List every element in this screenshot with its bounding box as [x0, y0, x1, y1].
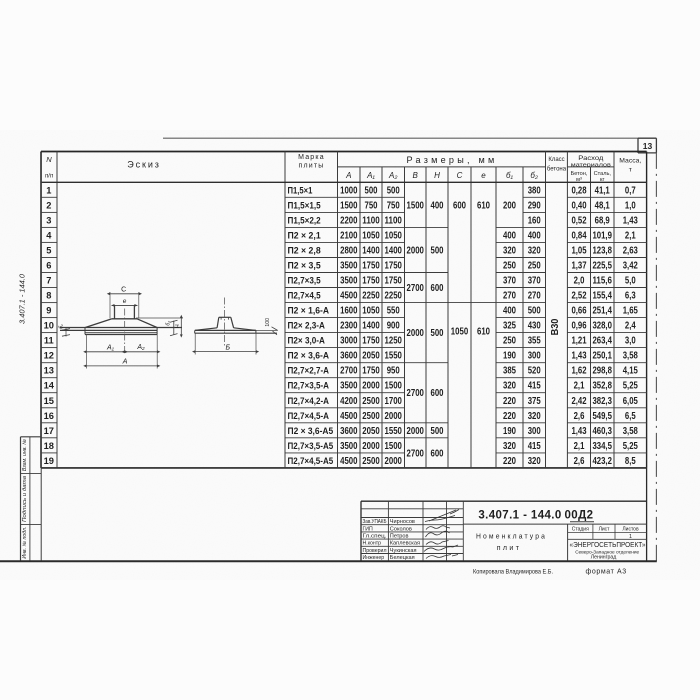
svg-text:2700: 2700 [407, 388, 425, 399]
svg-text:270: 270 [503, 291, 516, 302]
svg-text:3500: 3500 [340, 261, 358, 272]
svg-text:1400: 1400 [362, 321, 380, 332]
svg-text:220: 220 [503, 396, 516, 407]
svg-text:48,1: 48,1 [595, 200, 611, 211]
svg-text:5,25: 5,25 [623, 381, 639, 392]
svg-text:1750: 1750 [362, 336, 380, 347]
svg-text:1050: 1050 [385, 230, 403, 241]
svg-text:300: 300 [528, 426, 541, 437]
svg-text:2700: 2700 [407, 283, 425, 294]
svg-text:2000: 2000 [362, 441, 380, 452]
svg-text:2,6: 2,6 [574, 411, 585, 422]
svg-text:1,62: 1,62 [571, 366, 587, 377]
svg-text:Листов: Листов [622, 527, 639, 533]
svg-text:1750: 1750 [362, 261, 380, 272]
svg-text:Стадия: Стадия [572, 527, 589, 533]
svg-text:325: 325 [503, 321, 516, 332]
svg-text:520: 520 [528, 366, 541, 377]
svg-text:251,4: 251,4 [592, 306, 612, 317]
svg-text:б₁: б₁ [506, 171, 514, 180]
svg-text:П2,7×4,5-А5: П2,7×4,5-А5 [288, 456, 334, 466]
svg-text:С: С [121, 287, 126, 294]
svg-text:2300: 2300 [340, 321, 358, 332]
svg-text:П1,5×1,5: П1,5×1,5 [288, 200, 321, 210]
svg-text:П2,7×4,5: П2,7×4,5 [288, 291, 321, 301]
svg-text:«ЭНЕРГОСЕТЬПРОЕКТ»: «ЭНЕРГОСЕТЬПРОЕКТ» [570, 540, 646, 549]
svg-text:375: 375 [528, 396, 541, 407]
svg-text:Инв. № подл.: Инв. № подл. [22, 527, 28, 559]
svg-text:328,0: 328,0 [592, 321, 612, 332]
svg-text:10: 10 [44, 321, 54, 331]
svg-text:2000: 2000 [407, 426, 425, 437]
svg-text:2500: 2500 [362, 456, 380, 467]
svg-text:2700: 2700 [407, 448, 425, 459]
svg-text:4200: 4200 [340, 396, 358, 407]
svg-text:2200: 2200 [340, 215, 358, 226]
svg-text:400: 400 [503, 306, 516, 317]
svg-text:3,42: 3,42 [623, 261, 639, 272]
svg-text:А: А [345, 171, 351, 180]
svg-text:3600: 3600 [340, 426, 358, 437]
svg-text:0,52: 0,52 [571, 215, 587, 226]
svg-text:270: 270 [528, 291, 541, 302]
svg-text:2050: 2050 [362, 351, 380, 362]
svg-text:610: 610 [477, 326, 490, 337]
svg-text:2000: 2000 [407, 328, 425, 339]
svg-text:Масса,: Масса, [619, 158, 641, 165]
svg-text:В30: В30 [550, 318, 561, 335]
svg-text:3.407.1 - 144.0: 3.407.1 - 144.0 [478, 510, 561, 522]
svg-text:352,8: 352,8 [592, 381, 612, 392]
svg-text:750: 750 [387, 200, 400, 211]
svg-text:320: 320 [528, 245, 541, 256]
svg-text:формат А3: формат А3 [586, 569, 627, 576]
svg-text:2100: 2100 [340, 230, 358, 241]
svg-text:Эскиз: Эскиз [127, 160, 161, 170]
svg-text:68,9: 68,9 [595, 215, 611, 226]
svg-text:220: 220 [503, 456, 516, 467]
svg-text:355: 355 [528, 336, 541, 347]
svg-text:3,58: 3,58 [623, 426, 639, 437]
svg-text:0,28: 0,28 [571, 185, 587, 196]
svg-text:б₂: б₂ [165, 321, 171, 326]
svg-text:334,5: 334,5 [592, 441, 612, 452]
svg-text:0,84: 0,84 [571, 230, 587, 241]
svg-text:225,5: 225,5 [592, 261, 612, 272]
svg-text:1,05: 1,05 [571, 245, 587, 256]
svg-text:Зав.УПАКБ: Зав.УПАКБ [363, 519, 388, 525]
svg-text:1050: 1050 [451, 326, 469, 337]
svg-text:А₁: А₁ [106, 344, 115, 351]
svg-text:А₁: А₁ [366, 171, 375, 180]
svg-text:6,5: 6,5 [625, 411, 636, 422]
svg-text:1550: 1550 [385, 426, 403, 437]
svg-text:Белецкая: Белецкая [390, 555, 415, 561]
svg-text:6: 6 [46, 261, 51, 271]
svg-text:4,15: 4,15 [623, 366, 639, 377]
svg-text:2500: 2500 [362, 411, 380, 422]
svg-text:плиты: плиты [298, 163, 324, 170]
svg-text:320: 320 [503, 441, 516, 452]
svg-text:е: е [481, 171, 486, 180]
svg-text:П2 × 2,1: П2 × 2,1 [288, 230, 321, 240]
svg-text:Каплевская: Каплевская [390, 541, 420, 547]
svg-text:5,25: 5,25 [623, 441, 639, 452]
svg-text:Проверил: Проверил [363, 548, 387, 554]
svg-text:1550: 1550 [385, 351, 403, 362]
svg-text:П2 × 3,6-А5: П2 × 3,6-А5 [288, 426, 334, 436]
svg-text:250: 250 [528, 261, 541, 272]
svg-text:4500: 4500 [340, 291, 358, 302]
svg-text:12: 12 [44, 351, 54, 361]
svg-text:Соколов: Соколов [390, 526, 412, 532]
svg-text:320: 320 [528, 411, 541, 422]
svg-text:160: 160 [528, 215, 541, 226]
svg-text:П1,5×2,2: П1,5×2,2 [288, 215, 321, 225]
svg-text:415: 415 [528, 441, 541, 452]
svg-text:430: 430 [528, 321, 541, 332]
svg-text:Н.контр: Н.контр [363, 541, 382, 547]
svg-text:9: 9 [46, 306, 51, 316]
svg-text:Расход: Расход [578, 156, 604, 162]
svg-text:2250: 2250 [385, 291, 403, 302]
svg-text:плит: плит [497, 545, 522, 552]
svg-text:6,3: 6,3 [625, 291, 636, 302]
svg-text:155,4: 155,4 [592, 291, 612, 302]
svg-text:1750: 1750 [385, 276, 403, 287]
svg-text:1250: 1250 [385, 336, 403, 347]
svg-text:1400: 1400 [362, 245, 380, 256]
svg-text:1,43: 1,43 [571, 426, 587, 437]
svg-text:600: 600 [431, 388, 444, 399]
svg-text:2: 2 [46, 200, 51, 210]
svg-text:17: 17 [44, 426, 54, 436]
svg-text:1750: 1750 [362, 366, 380, 377]
svg-text:П2,7×2,7-А: П2,7×2,7-А [288, 366, 330, 376]
svg-text:Бетон,: Бетон, [571, 171, 588, 177]
svg-text:100: 100 [265, 318, 271, 327]
svg-text:1,0: 1,0 [625, 200, 636, 211]
svg-text:С: С [457, 171, 463, 180]
svg-text:320: 320 [528, 456, 541, 467]
svg-text:14: 14 [44, 381, 55, 391]
svg-text:18: 18 [44, 441, 54, 451]
svg-text:1500: 1500 [340, 200, 358, 211]
svg-text:2050: 2050 [362, 426, 380, 437]
svg-text:кг: кг [600, 177, 605, 183]
svg-text:500: 500 [365, 185, 378, 196]
svg-text:16: 16 [44, 411, 54, 421]
svg-text:1100: 1100 [385, 215, 403, 226]
svg-text:В: В [413, 171, 419, 180]
svg-text:Чукинская: Чукинская [390, 548, 417, 554]
svg-text:Взам. инв. №: Взам. инв. № [22, 439, 28, 472]
svg-text:3000: 3000 [340, 336, 358, 347]
svg-text:1500: 1500 [385, 381, 403, 392]
svg-text:П2,7×3,5-А5: П2,7×3,5-А5 [288, 441, 334, 451]
svg-text:Сталь,: Сталь, [594, 171, 612, 177]
svg-text:2,1: 2,1 [625, 230, 636, 241]
svg-text:2500: 2500 [362, 396, 380, 407]
svg-text:460,3: 460,3 [592, 426, 612, 437]
svg-text:Гл.спец.: Гл.спец. [363, 534, 387, 540]
svg-text:1000: 1000 [340, 185, 358, 196]
svg-text:т: т [629, 167, 632, 174]
svg-text:500: 500 [431, 426, 444, 437]
svg-text:1700: 1700 [385, 396, 403, 407]
svg-text:П2,7×4,5-А: П2,7×4,5-А [288, 411, 330, 421]
svg-text:400: 400 [528, 230, 541, 241]
svg-text:2700: 2700 [340, 366, 358, 377]
svg-text:115,6: 115,6 [592, 276, 612, 287]
svg-text:3: 3 [46, 215, 51, 225]
svg-text:Б: Б [226, 345, 231, 352]
svg-text:0,96: 0,96 [571, 321, 587, 332]
svg-text:13: 13 [44, 366, 54, 376]
svg-text:4500: 4500 [340, 411, 358, 422]
svg-text:15: 15 [44, 396, 54, 406]
svg-text:2,42: 2,42 [571, 396, 587, 407]
svg-text:370: 370 [528, 276, 541, 287]
svg-text:1050: 1050 [362, 230, 380, 241]
svg-text:423,2: 423,2 [592, 456, 612, 467]
svg-text:1,43: 1,43 [623, 215, 639, 226]
svg-text:3,0: 3,0 [625, 336, 636, 347]
svg-text:500: 500 [387, 185, 400, 196]
svg-text:П2,7×3,5-А: П2,7×3,5-А [288, 381, 330, 391]
svg-text:250: 250 [503, 336, 516, 347]
svg-text:П2× 3,0-А: П2× 3,0-А [288, 336, 326, 346]
svg-text:2,1: 2,1 [574, 381, 585, 392]
svg-text:123,8: 123,8 [592, 245, 612, 256]
svg-text:Ленинград: Ленинград [591, 555, 617, 561]
svg-text:8: 8 [46, 291, 51, 301]
svg-text:Н: Н [175, 324, 181, 328]
svg-text:1400: 1400 [385, 245, 403, 256]
svg-text:2000: 2000 [385, 456, 403, 467]
svg-text:П1,5×1: П1,5×1 [288, 185, 313, 195]
svg-text:263,4: 263,4 [592, 336, 612, 347]
svg-text:600: 600 [431, 283, 444, 294]
svg-text:380: 380 [528, 185, 541, 196]
svg-text:2,1: 2,1 [574, 441, 585, 452]
svg-text:4: 4 [46, 230, 52, 240]
svg-text:1750: 1750 [362, 276, 380, 287]
svg-text:N: N [46, 155, 52, 164]
svg-text:550: 550 [387, 306, 400, 317]
svg-text:298,8: 298,8 [592, 366, 612, 377]
svg-text:0,66: 0,66 [571, 306, 587, 317]
svg-text:П2 × 1,6-А: П2 × 1,6-А [288, 306, 330, 316]
svg-text:220: 220 [503, 411, 516, 422]
svg-text:320: 320 [503, 245, 516, 256]
svg-text:6,05: 6,05 [623, 396, 639, 407]
svg-text:00Д2: 00Д2 [565, 510, 594, 522]
svg-text:2000: 2000 [385, 411, 403, 422]
svg-text:материалов: материалов [571, 162, 611, 168]
svg-text:3,58: 3,58 [623, 351, 639, 362]
svg-text:2,52: 2,52 [571, 291, 587, 302]
svg-text:4500: 4500 [340, 456, 358, 467]
svg-text:1100: 1100 [362, 215, 380, 226]
svg-text:600: 600 [431, 448, 444, 459]
svg-text:ГИП: ГИП [363, 526, 374, 532]
svg-text:П2 × 3,5: П2 × 3,5 [288, 261, 321, 271]
svg-text:3500: 3500 [340, 276, 358, 287]
svg-text:П2 × 3,6-А: П2 × 3,6-А [288, 351, 330, 361]
svg-text:0,40: 0,40 [571, 200, 587, 211]
svg-text:1,65: 1,65 [623, 306, 639, 317]
svg-text:7: 7 [46, 276, 51, 286]
svg-text:2800: 2800 [340, 245, 358, 256]
svg-text:2000: 2000 [407, 245, 425, 256]
svg-text:950: 950 [387, 366, 400, 377]
svg-text:1500: 1500 [407, 200, 425, 211]
svg-text:5,0: 5,0 [625, 276, 636, 287]
svg-text:400: 400 [503, 230, 516, 241]
svg-text:11: 11 [44, 336, 54, 346]
svg-text:400: 400 [431, 200, 444, 211]
svg-text:1500: 1500 [385, 441, 403, 452]
svg-text:2,6: 2,6 [574, 456, 585, 467]
svg-text:б₁: б₁ [59, 324, 65, 329]
svg-text:1: 1 [46, 185, 51, 195]
svg-text:320: 320 [503, 381, 516, 392]
svg-text:250: 250 [503, 261, 516, 272]
svg-text:3600: 3600 [340, 351, 358, 362]
svg-text:750: 750 [365, 200, 378, 211]
svg-text:Класс: Класс [548, 157, 564, 163]
svg-text:610: 610 [477, 200, 490, 211]
svg-text:А: А [122, 357, 128, 366]
svg-text:Номенклатура: Номенклатура [476, 533, 547, 540]
svg-text:8,5: 8,5 [625, 456, 636, 467]
svg-text:250,1: 250,1 [592, 351, 612, 362]
svg-text:500: 500 [431, 245, 444, 256]
svg-text:А₂: А₂ [388, 171, 397, 180]
svg-text:1600: 1600 [340, 306, 358, 317]
svg-text:м³: м³ [576, 177, 582, 183]
svg-text:Лист: Лист [599, 527, 611, 533]
svg-text:190: 190 [503, 351, 516, 362]
svg-text:549,5: 549,5 [592, 411, 612, 422]
svg-text:Петров: Петров [390, 534, 409, 540]
svg-text:1050: 1050 [362, 306, 380, 317]
svg-text:2,4: 2,4 [625, 321, 636, 332]
svg-text:5: 5 [46, 245, 51, 255]
svg-text:13: 13 [643, 141, 653, 151]
svg-text:370: 370 [503, 276, 516, 287]
svg-text:415: 415 [528, 381, 541, 392]
svg-text:бетона: бетона [547, 167, 567, 173]
svg-text:101,9: 101,9 [592, 230, 612, 241]
svg-text:0,7: 0,7 [625, 185, 636, 196]
svg-text:2,63: 2,63 [623, 245, 639, 256]
svg-text:300: 300 [528, 351, 541, 362]
svg-text:П2× 2,3-А: П2× 2,3-А [288, 321, 326, 331]
svg-text:600: 600 [453, 200, 466, 211]
svg-text:п/п: п/п [45, 174, 54, 180]
svg-text:Копировала Владимирова Е.Б.: Копировала Владимирова Е.Б. [473, 568, 553, 575]
svg-text:Размеры, мм: Размеры, мм [407, 155, 498, 165]
svg-text:П2,7×4,2-А: П2,7×4,2-А [288, 396, 330, 406]
svg-text:3.407.1 - 144.0: 3.407.1 - 144.0 [18, 274, 27, 324]
svg-text:б₂: б₂ [530, 171, 538, 180]
svg-text:1,21: 1,21 [571, 336, 587, 347]
svg-text:200: 200 [503, 200, 516, 211]
svg-text:2250: 2250 [362, 291, 380, 302]
svg-text:2,0: 2,0 [574, 276, 585, 287]
svg-text:3500: 3500 [340, 441, 358, 452]
svg-text:1,37: 1,37 [571, 261, 587, 272]
svg-text:385: 385 [503, 366, 516, 377]
svg-text:2000: 2000 [362, 381, 380, 392]
svg-text:П2 × 2,8: П2 × 2,8 [288, 245, 321, 255]
svg-text:Чирносов: Чирносов [390, 519, 415, 525]
svg-text:3500: 3500 [340, 381, 358, 392]
svg-text:290: 290 [528, 200, 541, 211]
svg-text:Подпись и дата: Подпись и дата [22, 476, 28, 522]
svg-text:900: 900 [387, 321, 400, 332]
svg-text:П2,7×3,5: П2,7×3,5 [288, 276, 321, 286]
svg-text:1750: 1750 [385, 261, 403, 272]
svg-text:Марка: Марка [298, 154, 325, 161]
svg-text:Н: Н [434, 171, 440, 180]
svg-text:19: 19 [44, 456, 54, 466]
svg-text:Инженер: Инженер [363, 555, 385, 561]
svg-text:500: 500 [528, 306, 541, 317]
svg-text:190: 190 [503, 426, 516, 437]
svg-text:е: е [123, 298, 127, 305]
svg-text:41,1: 41,1 [595, 185, 611, 196]
svg-text:500: 500 [431, 328, 444, 339]
svg-text:382,3: 382,3 [592, 396, 612, 407]
svg-text:А₂: А₂ [136, 344, 145, 351]
svg-text:1,43: 1,43 [571, 351, 587, 362]
